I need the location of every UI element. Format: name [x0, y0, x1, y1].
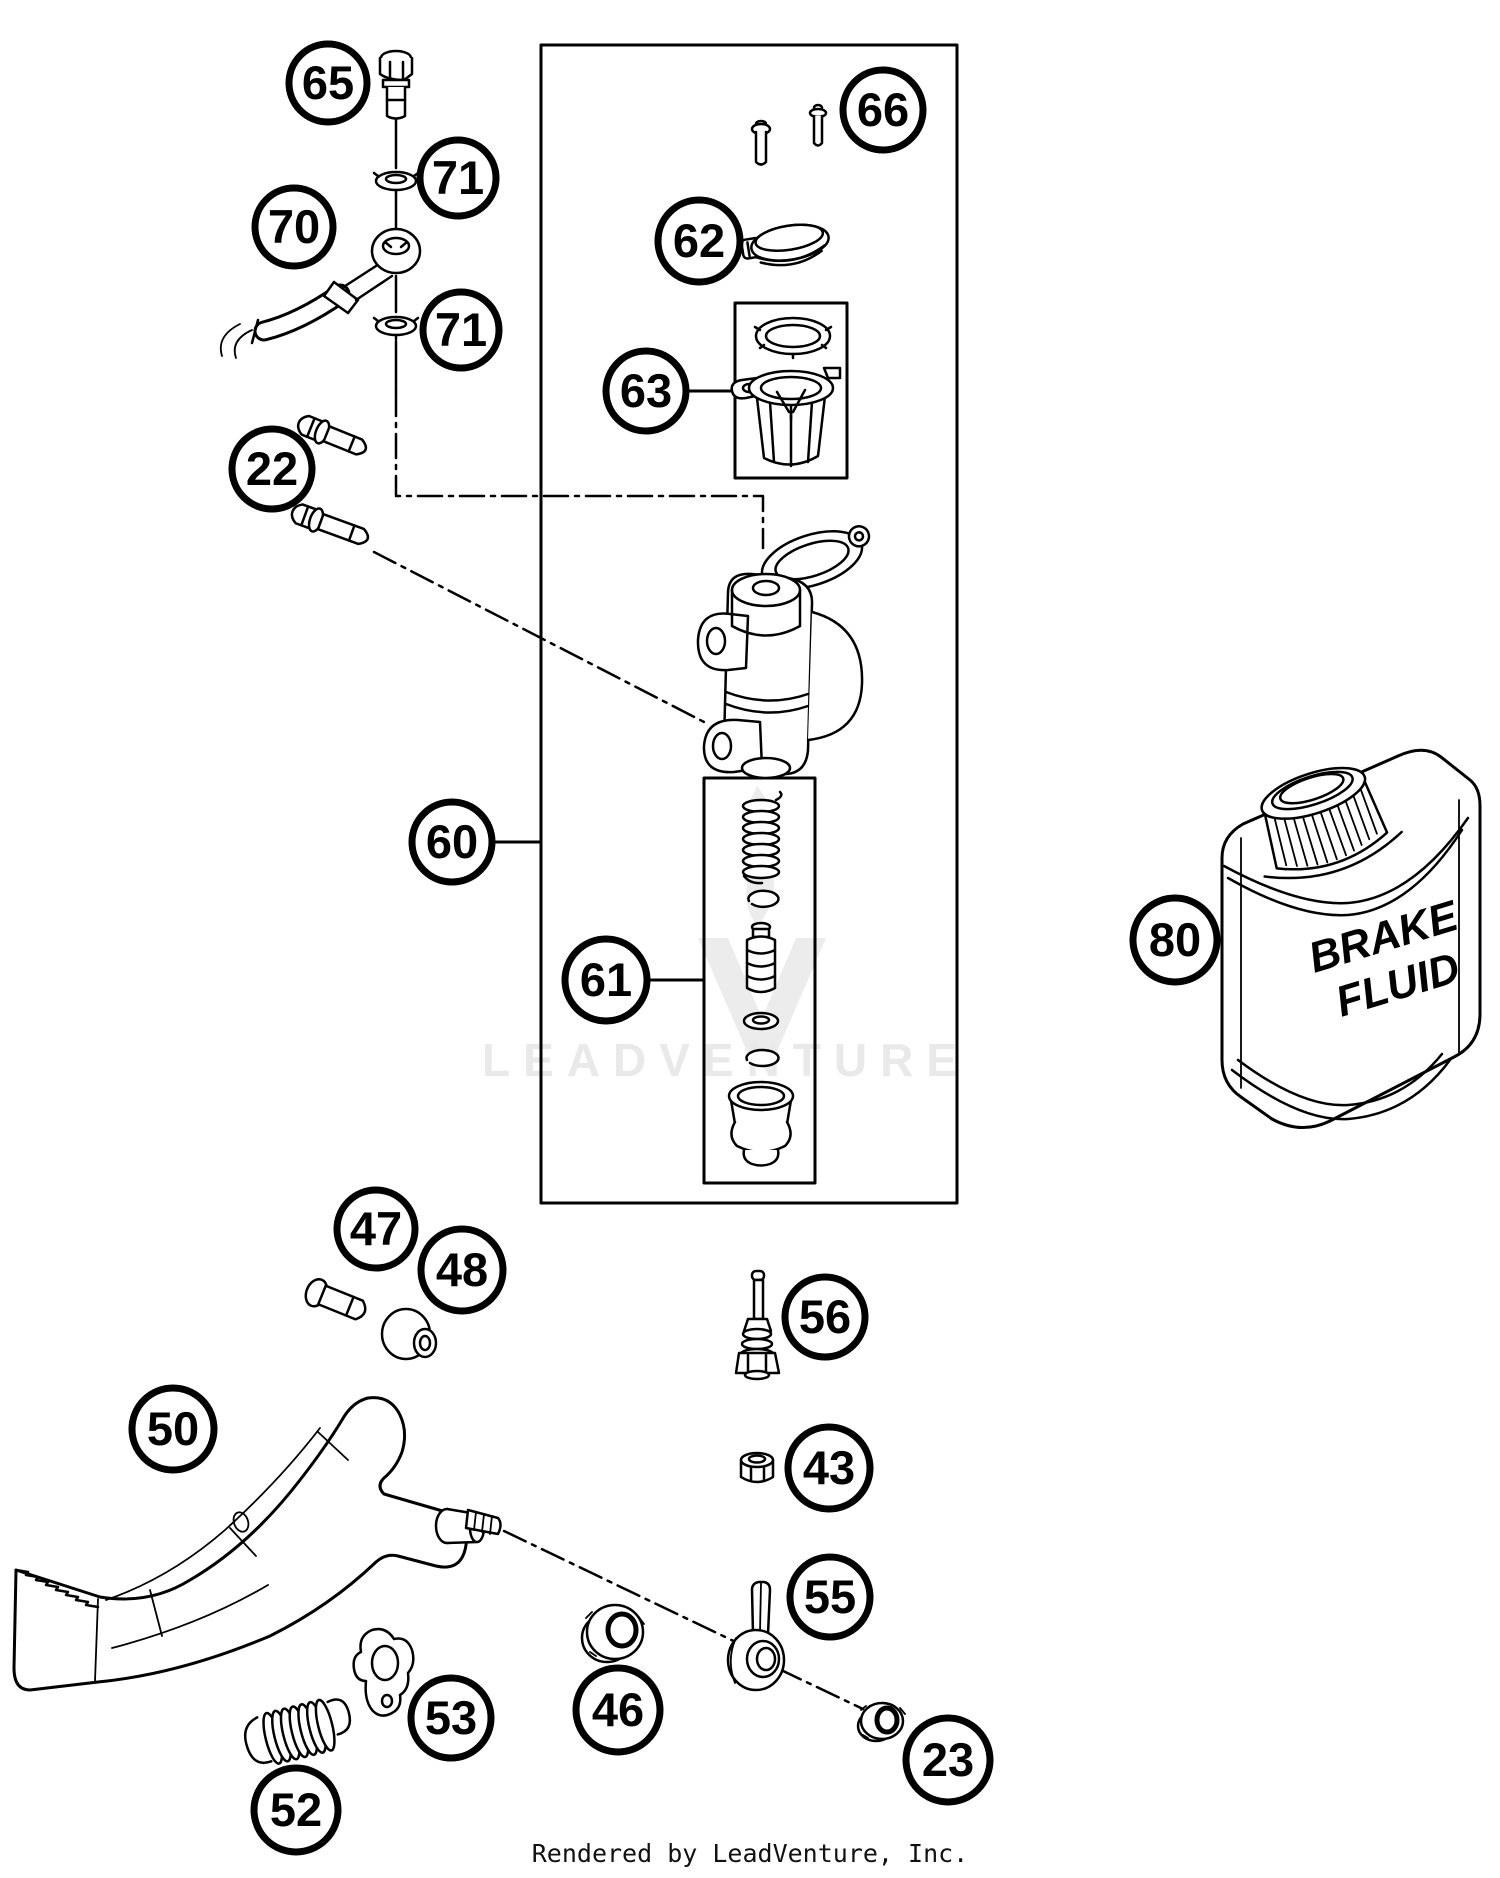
pivot-bushing	[382, 1309, 436, 1359]
callout-48: 48	[421, 1229, 503, 1311]
callout-23: 23	[906, 1718, 990, 1802]
callout-65: 65	[289, 44, 367, 122]
svg-text:71: 71	[435, 303, 487, 356]
callout-52: 52	[254, 1768, 338, 1852]
flange-nut-46	[582, 1605, 644, 1662]
banjo-bolt	[380, 51, 412, 119]
svg-text:71: 71	[432, 151, 484, 204]
callout-63: 63	[606, 351, 686, 431]
piston-spring	[743, 792, 781, 883]
svg-text:23: 23	[922, 1733, 974, 1786]
parts-diagram-page: LEADVENTURE	[0, 0, 1500, 1878]
svg-text:56: 56	[799, 1290, 851, 1343]
svg-text:47: 47	[350, 1202, 402, 1255]
flange-nut-23	[858, 1703, 905, 1741]
rendered-by-footer: Rendered by LeadVenture, Inc.	[532, 1839, 969, 1868]
svg-text:65: 65	[302, 56, 354, 109]
svg-text:43: 43	[803, 1441, 855, 1494]
svg-text:53: 53	[425, 1691, 477, 1744]
clevis	[728, 1582, 784, 1690]
exploded-parts-diagram: LEADVENTURE	[0, 0, 1500, 1878]
dust-boot	[729, 1082, 793, 1166]
svg-text:62: 62	[673, 214, 725, 267]
callout-60: 60	[412, 802, 492, 882]
svg-text:52: 52	[270, 1783, 322, 1836]
pivot-bolt	[302, 1276, 370, 1325]
screw-22-b	[288, 500, 371, 550]
leadventure-text-watermark: LEADVENTURE	[482, 1034, 970, 1086]
reservoir-screw-a	[752, 121, 770, 165]
callout-46: 46	[576, 1668, 660, 1752]
callout-22: 22	[232, 429, 312, 509]
callout-71-upper: 71	[420, 140, 496, 216]
callout-70: 70	[255, 188, 333, 266]
svg-text:55: 55	[804, 1570, 856, 1623]
svg-text:48: 48	[436, 1243, 488, 1296]
lock-washer-upper	[374, 172, 418, 194]
callout-66: 66	[843, 70, 923, 150]
callout-50: 50	[132, 1388, 214, 1470]
return-spring	[240, 1694, 356, 1770]
reservoir-filter	[732, 368, 840, 466]
callout-80: 80	[1133, 898, 1217, 982]
circlip-upper	[748, 891, 778, 907]
brake-fluid-bottle: BRAKE FLUID	[1222, 750, 1480, 1127]
lock-washer-lower	[374, 317, 418, 339]
brake-pedal	[14, 1398, 484, 1690]
svg-text:63: 63	[620, 364, 672, 417]
svg-text:22: 22	[246, 442, 298, 495]
oring	[755, 318, 831, 358]
callout-53: 53	[411, 1678, 491, 1758]
leader-lines	[492, 391, 735, 980]
callout-62: 62	[658, 200, 740, 282]
svg-text:50: 50	[147, 1402, 199, 1455]
svg-text:46: 46	[592, 1683, 644, 1736]
reservoir-screw-b	[810, 105, 826, 146]
master-cylinder	[698, 517, 879, 778]
svg-text:66: 66	[857, 83, 909, 136]
hex-nut-43	[741, 1453, 773, 1482]
brake-light-switch	[736, 1271, 779, 1379]
stop-plate	[354, 1629, 414, 1716]
svg-text:60: 60	[426, 815, 478, 868]
callout-47: 47	[337, 1190, 415, 1268]
svg-text:61: 61	[580, 953, 632, 1006]
callout-56: 56	[785, 1277, 865, 1357]
callout-55: 55	[790, 1557, 870, 1637]
callout-43: 43	[788, 1427, 870, 1509]
svg-text:70: 70	[268, 200, 320, 253]
snap-ring	[746, 1050, 778, 1066]
piston-washer	[744, 1013, 778, 1029]
reservoir-cap	[740, 220, 832, 272]
piston	[747, 923, 775, 992]
callout-71-lower: 71	[423, 292, 499, 368]
callout-61: 61	[565, 939, 647, 1021]
svg-text:80: 80	[1149, 913, 1201, 966]
